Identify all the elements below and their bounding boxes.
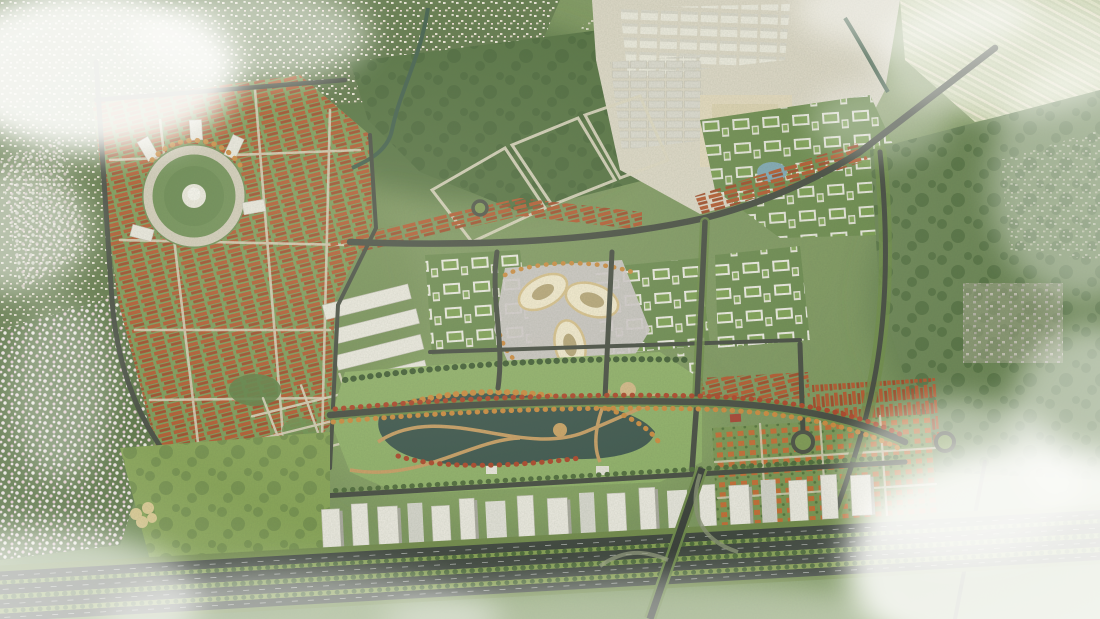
masterplan-canvas bbox=[0, 0, 1100, 619]
masterplan-aerial-rendering bbox=[0, 0, 1100, 619]
